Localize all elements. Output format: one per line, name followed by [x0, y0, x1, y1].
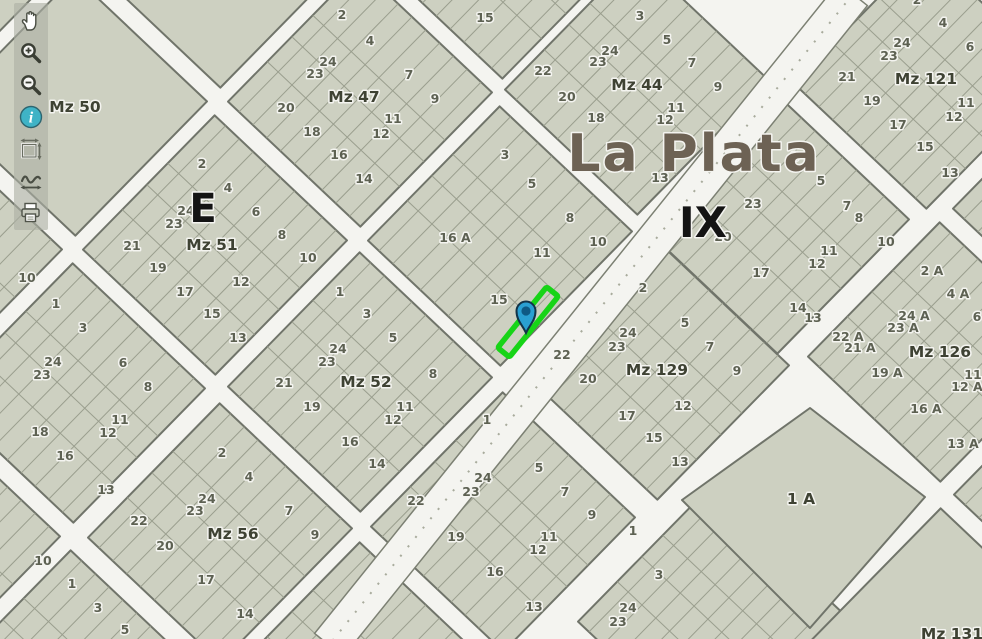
parcel-number: 3 [636, 8, 645, 23]
parcel-number: 21 [275, 375, 292, 390]
block-label-mz121: Mz 121 [895, 70, 957, 88]
parcel-number: 17 [752, 265, 769, 280]
svg-text:i: i [29, 109, 34, 126]
parcel-number: 12 [674, 398, 691, 413]
parcel-number: 4 [939, 15, 948, 30]
parcel-number: 5 [663, 32, 672, 47]
parcel-number: 12 [384, 412, 401, 427]
parcel-number: 23 [318, 354, 335, 369]
parcel-number: 1 [483, 412, 492, 427]
parcel-number: 22 [553, 347, 570, 362]
parcel-number: 15 [916, 139, 933, 154]
parcel-number: 20 [579, 371, 597, 386]
parcel-number: 10 [18, 270, 36, 285]
parcel-number: 24 [619, 600, 637, 615]
parcel-number: 7 [405, 67, 414, 82]
parcel-number: 16 [330, 147, 348, 162]
parcel-number: 4 [245, 469, 254, 484]
parcel-number: 14 [368, 456, 386, 471]
parcel-number: 7 [688, 55, 697, 70]
parcel-number: 19 A [871, 365, 903, 380]
parcel-number: 1 [629, 523, 638, 538]
parcel-number: 13 [804, 310, 821, 325]
pan-tool-button[interactable] [16, 6, 46, 35]
parcel-number: 5 [535, 460, 544, 475]
parcel-number: 10 [34, 553, 52, 568]
parcel-number: 2 [338, 7, 347, 22]
parcel-number: 18 [31, 424, 48, 439]
pan-hand-icon [18, 8, 44, 34]
parcel-number: 6 [252, 204, 261, 219]
parcel-number: 4 [366, 33, 375, 48]
block-label-mz47: Mz 47 [328, 88, 379, 106]
parcel-number: 19 [863, 93, 880, 108]
parcel-number: 12 [808, 256, 825, 271]
parcel-number: 2 [218, 445, 227, 460]
parcel-number: 5 [528, 176, 537, 191]
map-annotation: IX [679, 198, 727, 247]
parcel-number: 8 [855, 210, 864, 225]
parcel-number: 20 [558, 89, 576, 104]
zoom-out-button[interactable] [16, 70, 46, 99]
parcel-number: 12 A [951, 379, 982, 394]
parcel-number: 18 [587, 110, 604, 125]
zoom-in-button[interactable] [16, 38, 46, 67]
block-label-mz51: Mz 51 [186, 236, 237, 254]
parcel-number: 23 [306, 66, 323, 81]
parcel-number: 18 [303, 124, 320, 139]
parcel-number: 9 [733, 363, 742, 378]
parcel-number: 12 [232, 274, 249, 289]
parcel-number: 3 [94, 600, 103, 615]
parcel-number: 12 [945, 109, 962, 124]
parcel-number: 17 [197, 572, 214, 587]
parcel-number: 2 A [921, 263, 944, 278]
parcel-number: 1 [68, 576, 77, 591]
block-label-mz50: Mz 50 [49, 98, 101, 116]
parcel-number: 7 [561, 484, 570, 499]
parcel-number: 23 [744, 196, 761, 211]
parcel-number: 16 [56, 448, 74, 463]
parcel-number: 3 [363, 306, 372, 321]
parcel-number: 4 A [947, 286, 970, 301]
parcel-number: 23 [462, 484, 479, 499]
parcel-number: 15 [645, 430, 662, 445]
zoom-out-magnifier-icon [18, 72, 44, 98]
parcel-number: 19 [149, 260, 166, 275]
parcel-number: 15 [476, 10, 493, 25]
parcel-number: 2 [639, 280, 648, 295]
parcel-number: 1 [336, 284, 345, 299]
parcel-number: 9 [588, 507, 597, 522]
map-viewer: 2424237920111218161435222423720911121813… [0, 0, 982, 639]
parcel-number: 13 [941, 165, 958, 180]
block-label-mz56: Mz 56 [207, 525, 258, 543]
parcel-number: 2 [198, 156, 207, 171]
parcel-number: 9 [311, 527, 320, 542]
parcel-number: 21 [123, 238, 140, 253]
print-button[interactable] [16, 198, 46, 227]
parcel-number: 10 [299, 250, 317, 265]
block-label-block-1a: 1 A [787, 490, 815, 508]
parcel-number: 3 [501, 147, 510, 162]
parcel-number: 9 [431, 91, 440, 106]
parcel-number: 16 [486, 564, 504, 579]
parcel-number: 17 [618, 408, 635, 423]
parcel-number: 17 [176, 284, 193, 299]
parcel-number: 22 [407, 493, 424, 508]
parcel-number: 20 [156, 538, 174, 553]
block-label-mz52: Mz 52 [340, 373, 391, 391]
parcel-number: 13 A [947, 436, 979, 451]
map-canvas[interactable]: 2424237920111218161435222423720911121813… [0, 0, 982, 639]
measure-button[interactable] [16, 166, 46, 195]
parcel-number: 16 A [439, 230, 471, 245]
parcel-number: 1 [52, 296, 61, 311]
identify-info-button[interactable]: i [16, 102, 46, 131]
parcel-number: 23 [33, 367, 50, 382]
parcel-number: 19 [447, 529, 464, 544]
parcel-number: 6 [973, 309, 982, 324]
block-label-mz44: Mz 44 [611, 76, 663, 94]
parcel-number: 12 [99, 425, 116, 440]
parcel-number: 7 [706, 339, 715, 354]
parcel-number: 12 [529, 542, 546, 557]
parcel-number: 23 [186, 503, 203, 518]
parcel-number: 3 [655, 567, 664, 582]
parcel-number: 9 [714, 79, 723, 94]
parcel-number: 6 [966, 39, 975, 54]
parcel-number: 5 [681, 315, 690, 330]
parcel-number: 23 [880, 48, 897, 63]
parcel-number: 17 [889, 117, 906, 132]
block-label-mz131: Mz 131 [921, 625, 982, 639]
map-annotation: E [189, 186, 216, 232]
block-label-mz126: Mz 126 [909, 343, 971, 361]
parcel-number: 2 [913, 0, 922, 7]
parcel-number: 24 [474, 470, 492, 485]
measure-line-icon [18, 168, 44, 194]
toolbar: i [14, 3, 48, 230]
parcel-number: 23 [589, 54, 606, 69]
parcel-number: 20 [277, 100, 295, 115]
parcel-number: 23 [609, 614, 626, 629]
parcel-number: 8 [429, 366, 438, 381]
parcel-number: 24 [619, 325, 637, 340]
parcel-number: 11 [957, 95, 974, 110]
parcel-number: 16 A [910, 401, 942, 416]
parcel-number: 19 [303, 399, 320, 414]
parcel-number: 3 [79, 320, 88, 335]
parcel-number: 15 [490, 292, 507, 307]
parcel-number: 4 [224, 180, 233, 195]
parcel-number: 13 [671, 454, 688, 469]
parcel-number: 22 [130, 513, 147, 528]
parcel-number: 10 [589, 234, 607, 249]
parcel-number: 5 [121, 622, 130, 637]
parcel-number: 7 [285, 503, 294, 518]
parcel-number: 14 [355, 171, 373, 186]
parcel-number: 21 [838, 69, 855, 84]
zoom-extent-button[interactable] [16, 134, 46, 163]
parcel-number: 7 [843, 198, 852, 213]
parcel-number: 8 [144, 379, 153, 394]
parcel-number: 16 [341, 434, 359, 449]
print-icon [18, 200, 44, 226]
parcel-number: 10 [877, 234, 895, 249]
parcel-number: 11 [533, 245, 550, 260]
info-icon: i [18, 104, 44, 130]
zoom-in-magnifier-icon [18, 40, 44, 66]
parcel-number: 14 [236, 606, 254, 621]
parcel-number: 5 [389, 330, 398, 345]
parcel-number: 12 [372, 126, 389, 141]
parcel-number: 15 [203, 306, 220, 321]
map-annotation: La Plata [567, 124, 820, 184]
parcel-number: 8 [278, 227, 287, 242]
parcel-number: 13 [525, 599, 542, 614]
block-label-mz129: Mz 129 [626, 361, 688, 379]
parcel-number: 8 [566, 210, 575, 225]
marker-pin-dot [521, 306, 530, 315]
parcel-number: 22 [534, 63, 551, 78]
extent-resize-icon [18, 136, 44, 162]
parcel-number: 23 [608, 339, 625, 354]
parcel-number: 13 [97, 482, 114, 497]
parcel-number: 6 [119, 355, 128, 370]
parcel-number: 13 [229, 330, 246, 345]
parcel-number: 23 [165, 216, 182, 231]
parcel-number: 21 A [844, 340, 876, 355]
parcel-number: 23 A [887, 320, 919, 335]
parcel-number: 11 [384, 111, 401, 126]
